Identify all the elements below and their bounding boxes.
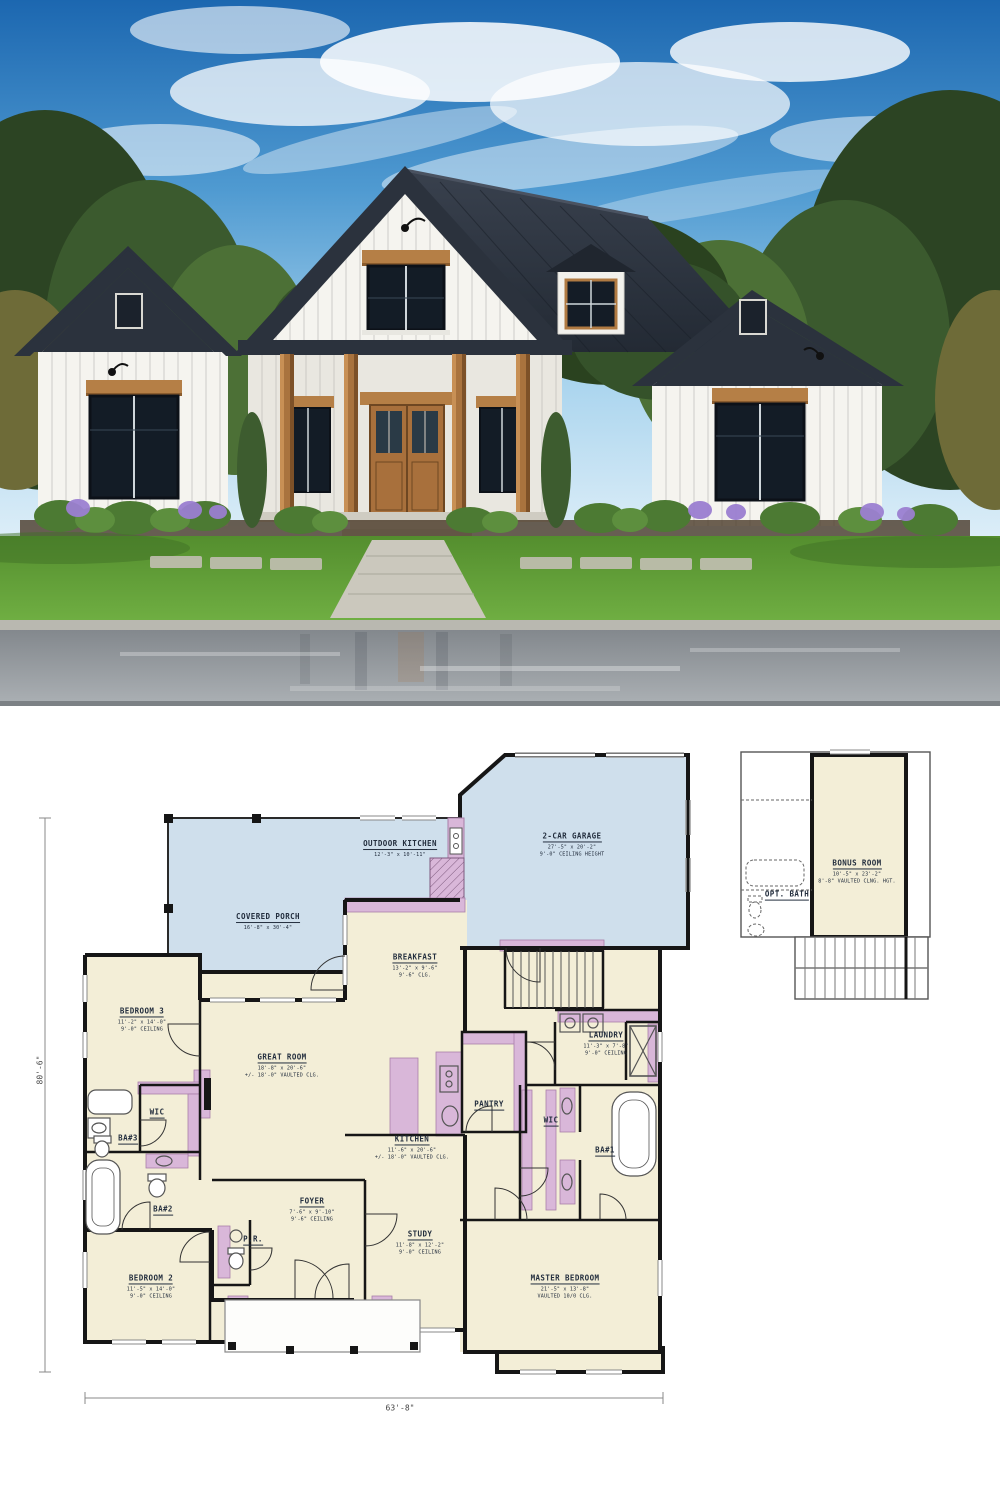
main-stairs bbox=[505, 951, 603, 1008]
room-dim1: 11'-8" x 12'-2" bbox=[396, 1243, 444, 1250]
room-dim2: 9'-0" CEILING bbox=[127, 1294, 175, 1301]
room-name: OUTDOOR KITCHEN bbox=[363, 839, 437, 850]
room-label-ba1: BA#1 bbox=[595, 1138, 615, 1159]
room-label-study: STUDY11'-8" x 12'-2"9'-0" CEILING bbox=[394, 1221, 447, 1256]
room-name: BA#2 bbox=[153, 1205, 173, 1216]
room-name: WIC bbox=[544, 1116, 559, 1127]
room-dim2: 9'-0" CEILING bbox=[396, 1250, 444, 1257]
floor-plan-drawing bbox=[0, 740, 1000, 1440]
room-label-wic-left: WIC bbox=[150, 1100, 165, 1121]
room-name: STUDY bbox=[408, 1229, 433, 1240]
room-label-opt-bath: OPT. BATH bbox=[765, 882, 809, 903]
street bbox=[0, 620, 1000, 706]
room-name: BONUS ROOM bbox=[832, 858, 881, 869]
room-name: BEDROOM 3 bbox=[120, 1006, 164, 1017]
room-dim1: 11'-5" x 14'-0" bbox=[127, 1287, 175, 1294]
front-stoop bbox=[225, 1300, 420, 1354]
room-label-laundry: LAUNDRY11'-3" x 7'-8"9'-0" CEILING bbox=[581, 1022, 630, 1057]
room-label-bonus: BONUS ROOM10'-5" x 23'-2"8'-8" VAULTED C… bbox=[815, 850, 899, 885]
room-dim1: 10'-5" x 23'-2" bbox=[818, 872, 896, 879]
room-label-ba2: BA#2 bbox=[153, 1197, 173, 1218]
room-dim1: 11'-2" x 14'-0" bbox=[118, 1020, 166, 1027]
room-dim1: 27'-5" x 20'-2" bbox=[540, 845, 605, 852]
room-name: MASTER BEDROOM bbox=[531, 1273, 600, 1284]
room-name: BEDROOM 2 bbox=[129, 1273, 173, 1284]
front-door bbox=[370, 405, 444, 517]
house-plan-page: 63'-8" 80'-6" OUTDOOR KITCHEN12'-3" x 10… bbox=[0, 0, 1000, 1500]
room-dim1: 7'-6" x 9'-10" bbox=[289, 1210, 334, 1217]
room-label-kitchen: KITCHEN11'-6" x 20'-6"+/- 18'-0" VAULTED… bbox=[372, 1126, 453, 1161]
room-label-foyer: FOYER7'-6" x 9'-10"9'-6" CEILING bbox=[287, 1188, 336, 1223]
room-name: BA#3 bbox=[118, 1134, 138, 1145]
room-dim1: 11'-3" x 7'-8" bbox=[583, 1044, 628, 1051]
room-name: FOYER bbox=[300, 1196, 325, 1207]
room-label-breakfast: BREAKFAST13'-2" x 9'-6"9'-6" CLG. bbox=[390, 944, 439, 979]
room-dim2: 9'-6" CEILING bbox=[289, 1217, 334, 1224]
room-label-outdoor-kitchen: OUTDOOR KITCHEN12'-3" x 10'-11" bbox=[363, 831, 437, 859]
room-name: GREAT ROOM bbox=[257, 1052, 306, 1063]
overall-depth-dimension: 80'-6" bbox=[36, 1056, 45, 1085]
room-name: OPT. BATH bbox=[765, 890, 809, 901]
room-label-bedroom3: BEDROOM 311'-2" x 14'-0"9'-0" CEILING bbox=[116, 998, 169, 1033]
room-dim2: 9'-0" CEILING HEIGHT bbox=[540, 852, 605, 859]
room-name: WIC bbox=[150, 1108, 165, 1119]
room-dim2: 9'-6" CLG. bbox=[392, 973, 437, 980]
house-exterior-svg bbox=[0, 0, 1000, 706]
room-label-great-room: GREAT ROOM18'-8" x 20'-6"+/- 18'-0" VAUL… bbox=[242, 1044, 323, 1079]
floor-plan-section: 63'-8" 80'-6" OUTDOOR KITCHEN12'-3" x 10… bbox=[0, 740, 1000, 1440]
room-dim1: 11'-6" x 20'-6" bbox=[375, 1148, 449, 1155]
room-name: BREAKFAST bbox=[393, 952, 437, 963]
room-dim1: 21'-5" x 13'-8" bbox=[533, 1287, 596, 1294]
room-dim2: 9'-0" CEILING bbox=[118, 1027, 166, 1034]
house-exterior-photo bbox=[0, 0, 1000, 706]
room-label-covered-porch: COVERED PORCH16'-8" x 30'-4" bbox=[236, 904, 300, 932]
room-dim1: 16'-8" x 30'-4" bbox=[239, 925, 298, 932]
room-dim1: 13'-2" x 9'-6" bbox=[392, 966, 437, 973]
room-dim2: +/- 18'-0" VAULTED CLG. bbox=[375, 1155, 449, 1162]
room-dim2: +/- 18'-0" VAULTED CLG. bbox=[245, 1073, 319, 1080]
front-porch bbox=[238, 340, 572, 536]
room-name: PANTRY bbox=[474, 1100, 504, 1111]
room-name: 2-CAR GARAGE bbox=[542, 831, 601, 842]
front-lawn bbox=[0, 532, 1000, 620]
room-dim2: 8'-8" VAULTED CLNG. HGT. bbox=[818, 879, 896, 886]
room-name: KITCHEN bbox=[395, 1134, 429, 1145]
room-name: COVERED PORCH bbox=[236, 912, 300, 923]
room-dim2: 9'-0" CEILING bbox=[583, 1051, 628, 1058]
room-label-pantry: PANTRY bbox=[474, 1092, 504, 1113]
room-dim1: 18'-8" x 20'-6" bbox=[245, 1066, 319, 1073]
room-name: LAUNDRY bbox=[589, 1030, 623, 1041]
room-dim1: 12'-3" x 10'-11" bbox=[366, 852, 434, 859]
room-dim2: VAULTED 10/0 CLG. bbox=[533, 1294, 596, 1301]
room-label-master: MASTER BEDROOM21'-5" x 13'-8"VAULTED 10/… bbox=[531, 1265, 600, 1300]
room-name: BA#1 bbox=[595, 1146, 615, 1157]
room-label-wic-right: WIC bbox=[544, 1108, 559, 1129]
overall-width-dimension: 63'-8" bbox=[386, 1404, 415, 1413]
room-label-bedroom2: BEDROOM 211'-5" x 14'-0"9'-0" CEILING bbox=[125, 1265, 178, 1300]
room-label-ba3: BA#3 bbox=[118, 1126, 138, 1147]
room-name: P.R. bbox=[243, 1235, 263, 1246]
room-label-garage: 2-CAR GARAGE27'-5" x 20'-2"9'-0" CEILING… bbox=[537, 823, 607, 858]
room-label-pr: P.R. bbox=[243, 1227, 263, 1248]
